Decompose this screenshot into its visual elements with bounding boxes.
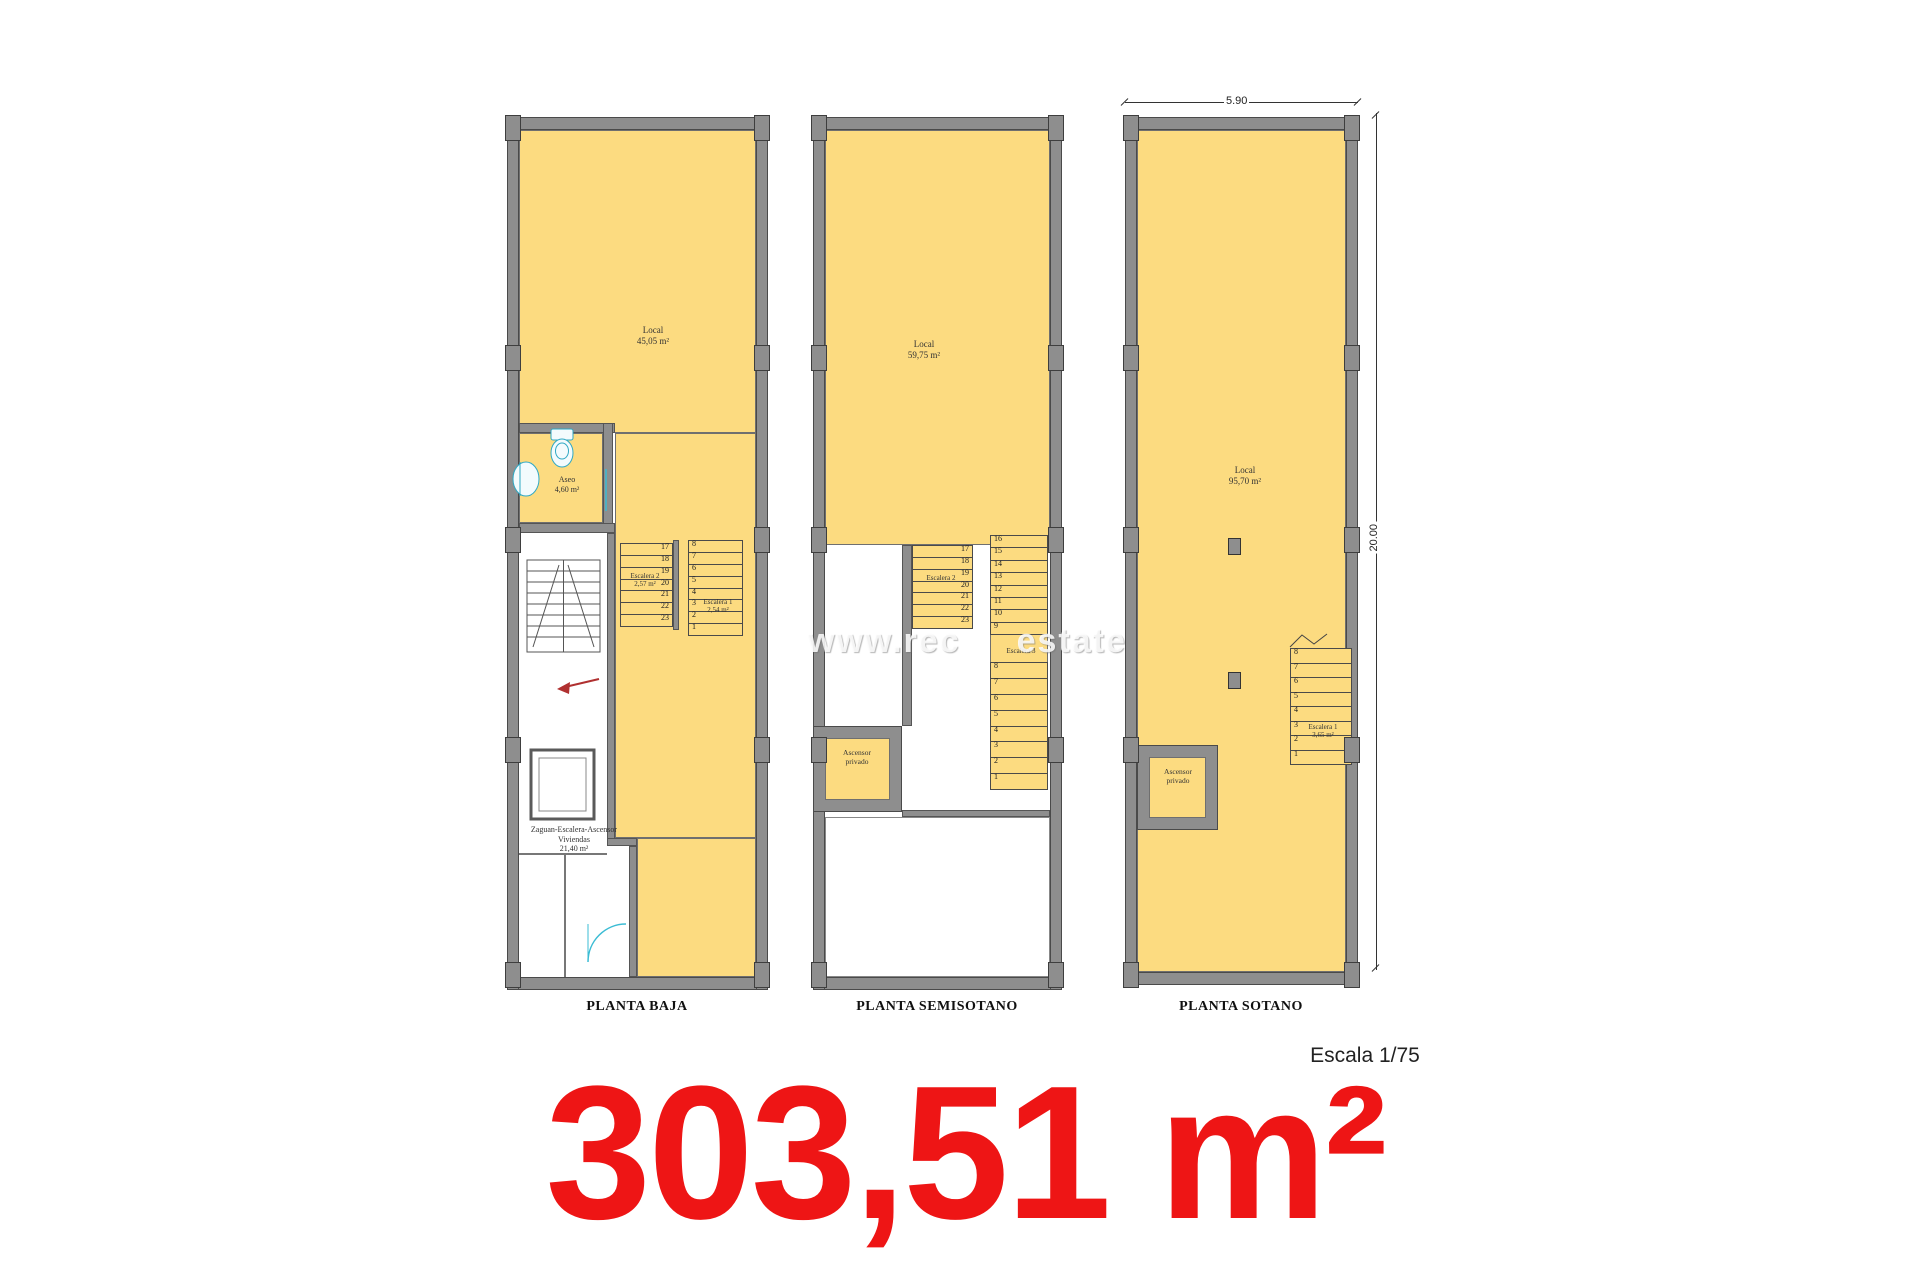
wall <box>1125 117 1358 130</box>
column <box>1344 115 1360 141</box>
stair-tread: 8 <box>1291 649 1351 664</box>
room-local <box>519 130 756 433</box>
column <box>1123 115 1139 141</box>
red-direction-arrow <box>565 679 599 687</box>
room-label-ascensor: Ascensorprivado <box>821 748 893 766</box>
wall-aseo <box>519 523 615 533</box>
core-stair-direction <box>533 565 594 647</box>
room-label-local: Local95,70 m² <box>1195 465 1295 487</box>
plan-planta-semisotano: 17181920212223 161514131211109 87654321 … <box>813 117 1062 990</box>
stair-tread: 1 <box>689 624 742 635</box>
watermark-text-left: www.rec <box>808 622 961 661</box>
column <box>505 962 521 988</box>
column <box>811 527 827 553</box>
stair-tread: 6 <box>1291 678 1351 693</box>
wall-core <box>607 533 615 846</box>
column <box>1123 737 1139 763</box>
plan-title-semisotano: PLANTA SEMISOTANO <box>827 999 1047 1015</box>
column <box>811 345 827 371</box>
column <box>754 527 770 553</box>
watermark-text-right: estate <box>1017 622 1127 661</box>
red-direction-arrow <box>557 682 570 694</box>
column <box>754 737 770 763</box>
column <box>1048 345 1064 371</box>
room-label-local: Local59,75 m² <box>874 339 974 361</box>
column <box>754 345 770 371</box>
stair-tread: 5 <box>991 711 1047 727</box>
wall <box>507 117 519 990</box>
wall <box>1125 972 1358 985</box>
column <box>505 527 521 553</box>
stair-tread: 4 <box>1291 707 1351 722</box>
wall <box>507 117 768 130</box>
stair-escalera-3-lower: 87654321 <box>990 662 1048 790</box>
storage-walls <box>519 854 607 977</box>
stair-tread: 6 <box>991 695 1047 711</box>
elevator-cabin <box>539 758 586 811</box>
stair-escalera-3-upper: 161514131211109 <box>990 535 1048 635</box>
stair-tread: 3 <box>991 742 1047 758</box>
core-stair-treads <box>527 571 600 637</box>
stair-tread: 8 <box>991 663 1047 679</box>
stair-tread: 4 <box>991 727 1047 743</box>
elevator-shaft <box>531 750 594 819</box>
column <box>1048 115 1064 141</box>
stair-tread: 23 <box>621 615 672 626</box>
column <box>811 737 827 763</box>
column <box>1123 527 1139 553</box>
column <box>505 737 521 763</box>
stair-tread: 7 <box>991 679 1047 695</box>
stair-escalera-1: 87654321 <box>688 540 743 636</box>
dimension-height-label: 20.00 <box>1368 522 1380 554</box>
stair-label-escalera-1: Escalera 12,54 m² <box>692 598 744 615</box>
watermark: www.rec estate <box>808 622 1127 661</box>
room-label-local: Local45,05 m² <box>603 325 703 347</box>
column <box>1344 737 1360 763</box>
stair-tread: 5 <box>1291 693 1351 708</box>
wall-core <box>629 846 637 977</box>
column <box>505 345 521 371</box>
stair-tread: 2 <box>991 758 1047 774</box>
column <box>754 115 770 141</box>
stair-tread: 6 <box>689 565 742 577</box>
door-arc <box>588 924 626 962</box>
column <box>1048 527 1064 553</box>
column <box>505 115 521 141</box>
column <box>1048 962 1064 988</box>
stair-label-escalera-2: Escalera 22,57 m² <box>616 572 674 589</box>
column <box>1048 737 1064 763</box>
column <box>1344 527 1360 553</box>
wall <box>507 977 768 990</box>
room-local <box>1137 130 1346 972</box>
plan-planta-baja: 17181920212223 87654321 Escalera 22,57 m… <box>507 117 768 990</box>
column <box>1123 962 1139 988</box>
stair-tread: 7 <box>1291 664 1351 679</box>
room-local-bottom <box>637 838 756 977</box>
plan-title-baja: PLANTA BAJA <box>527 999 747 1015</box>
total-area-text: 303,51 m² <box>515 1058 1415 1248</box>
column <box>754 962 770 988</box>
pillar <box>1228 672 1241 689</box>
column <box>811 962 827 988</box>
stair-label-escalera-1: Escalera 13,65 m² <box>1297 723 1349 740</box>
wall <box>1050 117 1062 990</box>
wall-aseo <box>519 423 615 433</box>
wall-aseo <box>603 423 613 533</box>
wall <box>813 117 1062 130</box>
plan-planta-sotano: 87654321 Escalera 13,65 m² Ascensorpriva… <box>1125 117 1358 985</box>
stair-tread: 7 <box>689 553 742 565</box>
column <box>1344 345 1360 371</box>
column <box>811 115 827 141</box>
column <box>1123 345 1139 371</box>
wall-lower <box>902 810 1050 817</box>
dimension-width-label: 5.90 <box>1224 95 1249 107</box>
stair-tread: 5 <box>689 577 742 589</box>
floorplan-sheet: 17181920212223 87654321 Escalera 22,57 m… <box>0 0 1920 1280</box>
wall <box>813 117 825 990</box>
column <box>1344 962 1360 988</box>
pillar <box>1228 538 1241 555</box>
stair-escalera-2: 17181920212223 <box>912 545 973 629</box>
room-label-ascensor: Ascensorprivado <box>1143 767 1213 785</box>
open-floor-area <box>825 817 1050 977</box>
wall <box>756 117 768 990</box>
stair-tread: 1 <box>991 774 1047 789</box>
stair-tread: 10 <box>991 610 1047 622</box>
stair-tread: 8 <box>689 541 742 553</box>
plan-title-sotano: PLANTA SOTANO <box>1131 999 1351 1015</box>
room-label-aseo: Aseo4,60 m² <box>532 475 602 494</box>
room-local <box>825 130 1050 545</box>
stair-tread: 1 <box>1291 751 1351 765</box>
room-label-zaguan: Zaguan-Escalera-AscensorViviendas21,40 m… <box>517 825 631 854</box>
wall <box>813 977 1062 990</box>
stair-escalera-1: 87654321 <box>1290 648 1352 765</box>
stair-label-escalera-2: Escalera 2 <box>914 574 968 582</box>
core-stair <box>527 560 600 652</box>
